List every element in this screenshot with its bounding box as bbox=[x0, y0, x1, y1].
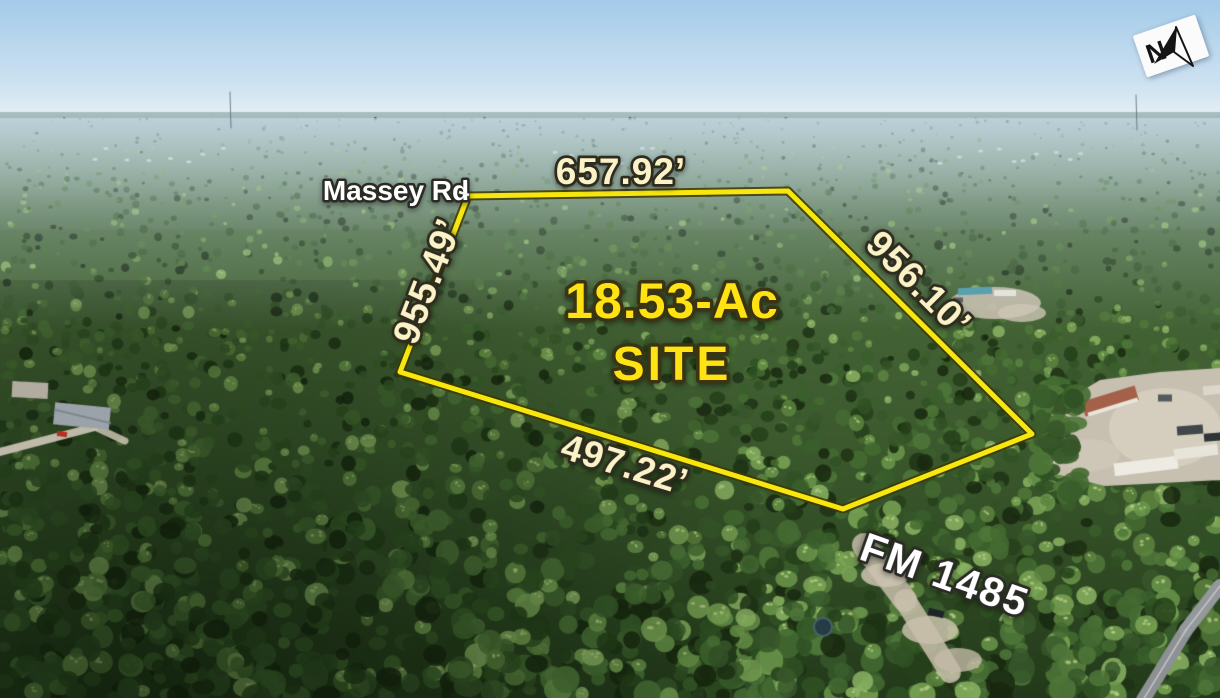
acreage-label-line2: SITE bbox=[613, 338, 732, 391]
road-label-massey-rd: Massey Rd bbox=[323, 175, 469, 206]
north-arrow: N bbox=[1133, 14, 1210, 77]
dimension-label-west: 955.49’ bbox=[385, 213, 470, 349]
aerial-site-photo: 657.92’ 955.49’ 956.10’ 497.22’ 18.53-Ac… bbox=[0, 0, 1220, 698]
dimension-label-north: 657.92’ bbox=[556, 151, 686, 192]
acreage-label-line1: 18.53-Ac bbox=[565, 273, 779, 329]
annotation-overlay: 657.92’ 955.49’ 956.10’ 497.22’ 18.53-Ac… bbox=[0, 0, 1220, 698]
road-label-fm-1485: FM 1485 bbox=[854, 524, 1035, 626]
